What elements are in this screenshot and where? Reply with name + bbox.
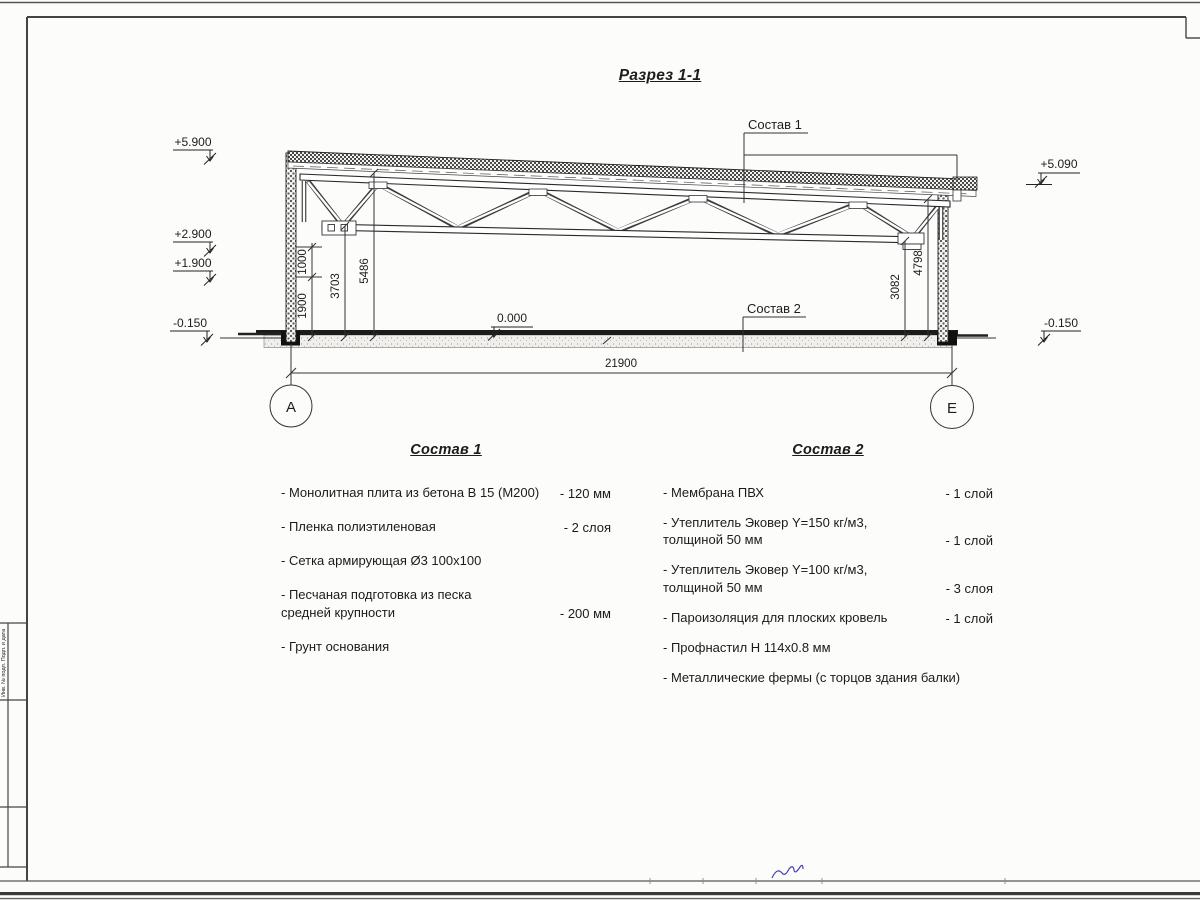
stamp-side-label: Инв. № подл. Подп. и дата <box>1 628 7 697</box>
material-name: - Грунт основания <box>281 638 603 655</box>
material-name: - Сетка армирующая Ø3 100х100 <box>281 552 603 569</box>
material-name: - Песчаная подготовка из песка средней к… <box>281 586 552 620</box>
sostav2-list: Состав 2 - Мембрана ПВХ - 1 слой - Утепл… <box>663 442 993 699</box>
material-value: - 1 слой <box>945 533 993 548</box>
material-row: - Профнастил Н 114х0.8 мм <box>663 639 993 656</box>
sostav1-title: Состав 1 <box>281 442 611 458</box>
elev-p5090: +5.090 <box>1040 157 1077 171</box>
material-name: - Монолитная плита из бетона В 15 (М200) <box>281 484 552 501</box>
material-name: - Металлические фермы (с торцов здания б… <box>663 669 985 686</box>
floor-slab <box>220 330 996 348</box>
material-name: - Пароизоляция для плоских кровель <box>663 609 937 626</box>
material-row: - Сетка армирующая Ø3 100х100 <box>281 552 611 569</box>
material-value: - 3 слоя <box>946 581 993 596</box>
axis-grid <box>270 344 974 429</box>
material-name: - Профнастил Н 114х0.8 мм <box>663 639 985 656</box>
dim-1900: 1900 <box>297 293 309 319</box>
material-row: - Монолитная плита из бетона В 15 (М200)… <box>281 484 611 501</box>
sostav2-title: Состав 2 <box>663 442 993 458</box>
material-row: - Грунт основания <box>281 638 611 655</box>
material-row: - Утеплитель Эковер Y=100 кг/м3, толщино… <box>663 561 993 595</box>
axis-label-a: А <box>286 399 296 416</box>
callout-sostav1-label: Состав 1 <box>748 117 802 132</box>
material-value: - 200 мм <box>560 606 611 621</box>
material-value: - 1 слой <box>945 611 993 626</box>
elev-p1900: +1.900 <box>174 256 211 270</box>
axis-label-e: Е <box>947 400 957 417</box>
vertical-dimensions <box>296 169 932 341</box>
left-wall <box>286 153 296 342</box>
elev-m0150-left: -0.150 <box>173 316 207 330</box>
material-row: - Металлические фермы (с торцов здания б… <box>663 669 993 686</box>
material-value: - 120 мм <box>560 486 611 501</box>
elev-p2900: +2.900 <box>174 227 211 241</box>
material-row: - Пленка полиэтиленовая - 2 слоя <box>281 518 611 535</box>
material-row: - Утеплитель Эковер Y=150 кг/м3, толщино… <box>663 514 993 548</box>
dim-1000: 1000 <box>297 249 309 275</box>
drawing-sheet: Инв. № подл. Подп. и дата <box>0 0 1200 900</box>
sostav1-list: Состав 1 - Монолитная плита из бетона В … <box>281 442 611 672</box>
material-name: - Мембрана ПВХ <box>663 484 937 501</box>
drawing-title: Разрез 1-1 <box>560 67 760 85</box>
dim-5486: 5486 <box>359 258 371 284</box>
dim-21900: 21900 <box>605 358 637 370</box>
dim-4798: 4798 <box>913 250 925 276</box>
material-row: - Пароизоляция для плоских кровель - 1 с… <box>663 609 993 626</box>
elev-m0150-right: -0.150 <box>1044 316 1078 330</box>
material-name: - Пленка полиэтиленовая <box>281 518 556 535</box>
material-name: - Утеплитель Эковер Y=150 кг/м3, толщино… <box>663 514 937 548</box>
callout-sostav2-label: Состав 2 <box>747 301 801 316</box>
material-value: - 1 слой <box>945 486 993 501</box>
material-value: - 2 слоя <box>564 520 611 535</box>
material-name: - Утеплитель Эковер Y=100 кг/м3, толщино… <box>663 561 938 595</box>
signature-scribble <box>772 865 803 878</box>
dim-3703: 3703 <box>330 273 342 299</box>
elev-zero: 0.000 <box>497 311 527 325</box>
elev-p5900: +5.900 <box>174 135 211 149</box>
material-row: - Мембрана ПВХ - 1 слой <box>663 484 993 501</box>
dim-3082: 3082 <box>890 274 902 300</box>
material-row: - Песчаная подготовка из песка средней к… <box>281 586 611 620</box>
